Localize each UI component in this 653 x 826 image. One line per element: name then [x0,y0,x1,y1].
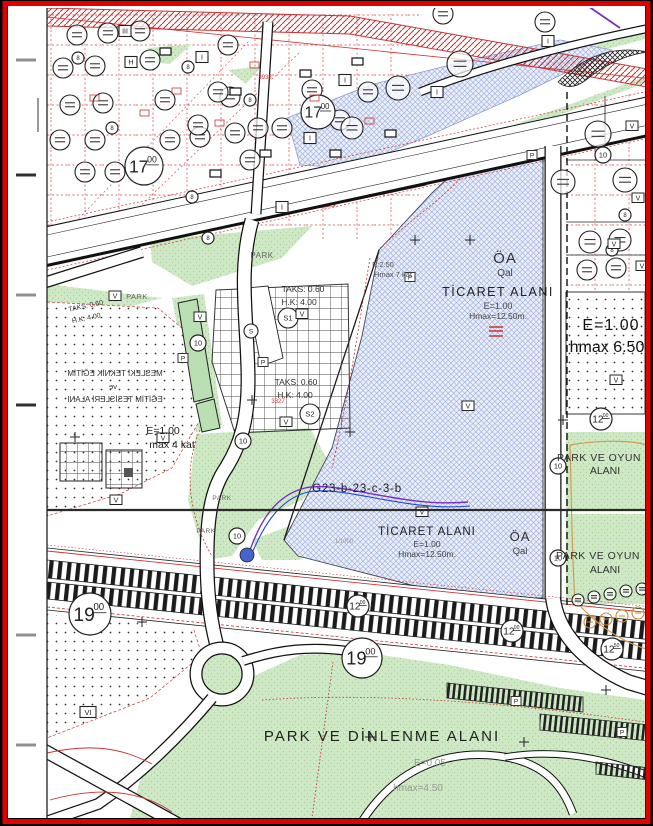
building-footprint [300,70,311,77]
svg-text:V: V [300,312,305,319]
road-width-circle: 10 [595,147,611,163]
v-box: V [194,312,206,322]
zone-e250: E:2.50 [372,260,394,269]
scale-note: 1/1000 [335,539,354,545]
tree-icon [188,115,208,135]
svg-text:V: V [636,196,641,203]
svg-text:10: 10 [233,532,241,541]
zone-ticaret2-e: E=1.00 [413,539,440,549]
svg-text:VI: VI [84,708,91,717]
svg-text:I: I [309,136,311,143]
road-width-circle: 1250 [601,638,623,660]
svg-text:10: 10 [194,339,202,348]
svg-text:10: 10 [239,437,247,446]
tree-icon [85,130,105,150]
svg-text:00: 00 [365,646,375,656]
road-width-circle: 1700 [125,147,163,185]
park-dinlenme-e: E=0.05 [414,758,446,769]
parcel-box: I [196,52,208,63]
tree-icon [572,594,584,606]
svg-text:I: I [281,205,283,212]
svg-text:V: V [640,264,645,271]
v-box: V [296,309,308,319]
svg-text:H: H [128,60,133,67]
building-footprint [385,130,396,137]
tree-icon [604,588,616,600]
v-box: V [610,375,622,385]
svg-text:P: P [530,152,534,159]
svg-text:I: I [344,78,346,85]
road-width-circle: 8 [619,209,631,221]
svg-text:V: V [466,404,471,411]
svg-text:V: V [630,124,635,131]
tree-icon [579,231,601,253]
svg-text:17: 17 [305,105,322,122]
zone-ticaret2-hmax: Hmax=12.50m. [398,549,456,559]
p-box: P [527,151,537,160]
road-width-circle: 8 [244,94,256,106]
zone-e250-hmax: Hmax 7 kat [374,270,413,279]
park-oyun2-l1: PARK VE OYUN [556,550,640,562]
tree-icon [386,76,410,100]
tree-icon [93,93,113,113]
svg-text:P: P [620,729,624,736]
tree-icon [577,260,597,280]
zoning-map-canvas: 1700170019001900120012001200125010101010… [0,0,653,826]
tree-icon [585,121,611,147]
tree-icon [50,130,70,150]
p-box: P [617,728,627,737]
zone-ticaret2-name: TİCARET ALANI [378,525,476,538]
taks-a-hk: H.K: 4.00 [281,297,317,307]
v-box: V [626,121,638,131]
parcel-box: I [542,36,554,47]
right-zone-hmax: hmax 6.50 [570,339,645,356]
svg-text:S: S [249,329,254,336]
svg-text:S2: S2 [305,410,314,419]
svg-text:I: I [436,90,438,97]
tree-icon [98,23,118,43]
tree-icon [535,12,555,32]
tree-icon [447,51,473,77]
tree-icon [620,585,632,597]
tree-icon [248,118,268,138]
parcel-box: I [276,202,288,213]
egitim-kat: max 4 kat [149,439,195,451]
svg-text:V: V [614,378,619,385]
tree-icon [341,117,363,139]
zone-oa1-sub: Qal [497,268,513,279]
tree-icon [85,56,105,76]
building-footprint [260,150,271,157]
svg-text:19: 19 [346,648,366,669]
svg-text:V: V [284,420,289,427]
p-box: P [178,354,188,363]
tree-icon [613,168,637,192]
road-width-circle: 1200 [501,620,523,642]
svg-text:V: V [114,498,119,505]
tree-icon [240,150,260,170]
svg-text:19: 19 [73,605,94,626]
tree-icon [551,170,575,194]
park-label: PARK [196,528,215,535]
park-dinlenme-title: PARK VE DİNLENME ALANI [264,727,500,745]
road-width-circle: 8 [186,191,198,203]
parcel-box: I [339,75,351,86]
s-circle: S2 [300,404,320,424]
tree-icon [218,35,238,55]
road-width-circle: 1200 [590,408,612,430]
s-circle: S [244,324,258,338]
building-footprint [230,88,241,95]
right-zone-e: E=1.00 [582,317,639,334]
road-width-circle: 1700 [301,95,335,129]
svg-text:V: V [198,315,203,322]
svg-text:V: V [113,294,118,301]
road-width-circle: 1900 [69,593,111,635]
v-box: V [632,193,644,203]
egitim-l2: ve [109,382,117,391]
road-width-circle: 8 [106,122,118,134]
road-width-circle: 10 [235,433,251,449]
tree-icon [60,95,80,115]
svg-text:00: 00 [93,602,104,613]
svg-text:III: III [122,29,128,36]
parcel-box: III [119,26,131,37]
road-width-circle: 8 [182,61,194,73]
v-box: V [416,507,428,517]
svg-text:00: 00 [321,102,330,111]
zone-oa2-sub: Qal [513,546,528,557]
park-oyun2-l2: ALANI [590,564,620,576]
svg-text:I: I [547,39,549,46]
building-footprint [210,170,221,177]
svg-text:P: P [261,359,265,366]
road-width-circle: 1200 [347,595,369,617]
p-box: P [511,697,521,706]
road-width-circle: 10 [229,528,245,544]
park-dinlenme-hmax: hmax=4.50 [393,783,443,794]
park-label: PARK [250,251,273,260]
taks-b: TAKS: 0.60 [275,377,318,387]
parcel-no-3327: 3327 [271,399,285,405]
park-oyun1-l2: ALANI [590,465,620,477]
zone-ticaret1-hmax: Hmax=12.50m. [469,311,527,321]
tree-icon [272,118,292,138]
svg-text:P: P [514,698,518,705]
svg-text:10: 10 [599,151,607,160]
svg-text:17: 17 [129,156,148,176]
tree-icon [208,82,228,102]
tree-icon [105,162,125,182]
map-content: 1700170019001900120012001200125010101010… [8,4,653,826]
egitim-l3: EĞİTİM TESİSLERİ ALANI [67,395,162,404]
svg-text:V: V [612,242,617,249]
v-box: V [608,239,620,249]
tree-icon [75,162,95,182]
building-footprint [330,150,341,157]
road-width-circle: 1900 [342,638,382,678]
zone-oa1-abbr: ÖA [493,249,517,267]
park-oyun1-l1: PARK VE OYUN [557,452,641,464]
svg-text:S1: S1 [283,314,292,323]
svg-text:P: P [181,355,185,362]
p-box: P [258,358,268,367]
v-box: V [280,417,292,427]
v-box: V [109,291,121,301]
sheet-label: G23-b-23-c-3-b [312,483,402,495]
park-label: PARK [126,292,148,301]
egitim-e: E=1.00 [146,425,180,437]
tree-icon [53,58,73,78]
tree-icon [588,591,600,603]
tree-icon [225,123,245,143]
v-box: V [462,401,474,411]
utility-node-icon [240,548,254,562]
road-width-circle: 10 [190,335,206,351]
tree-icon [358,82,378,102]
vi-box: VI [80,707,96,718]
v-box: V [110,495,122,505]
building-footprint [160,48,171,55]
tree-icon [160,130,180,150]
parcel-box: H [125,57,137,68]
parcel-box: I [304,133,316,144]
parcel-no-3938: 3938 [258,75,272,81]
tree-icon [140,50,160,70]
road-width-circle: 8 [202,232,214,244]
zone-ticaret1-name: TİCARET ALANI [442,285,554,299]
zone-oa2-abbr: ÖA [510,529,531,544]
zone-ticaret1-e: E=1.00 [484,301,513,311]
tree-icon [67,25,87,45]
taks-a: TAKS: 0.60 [282,284,325,294]
parcel-box: I [431,87,443,98]
building-footprint [352,58,363,65]
svg-text:I: I [201,55,203,62]
road-width-circle: 8 [72,52,84,64]
egitim-l1: MESLEKİ TEKNİK EĞİTİM [67,369,163,378]
svg-text:00: 00 [147,155,157,165]
tree-icon [130,21,150,41]
tree-icon [606,258,626,278]
park-label: PARK [212,495,231,502]
s-circle: S1 [278,308,298,328]
